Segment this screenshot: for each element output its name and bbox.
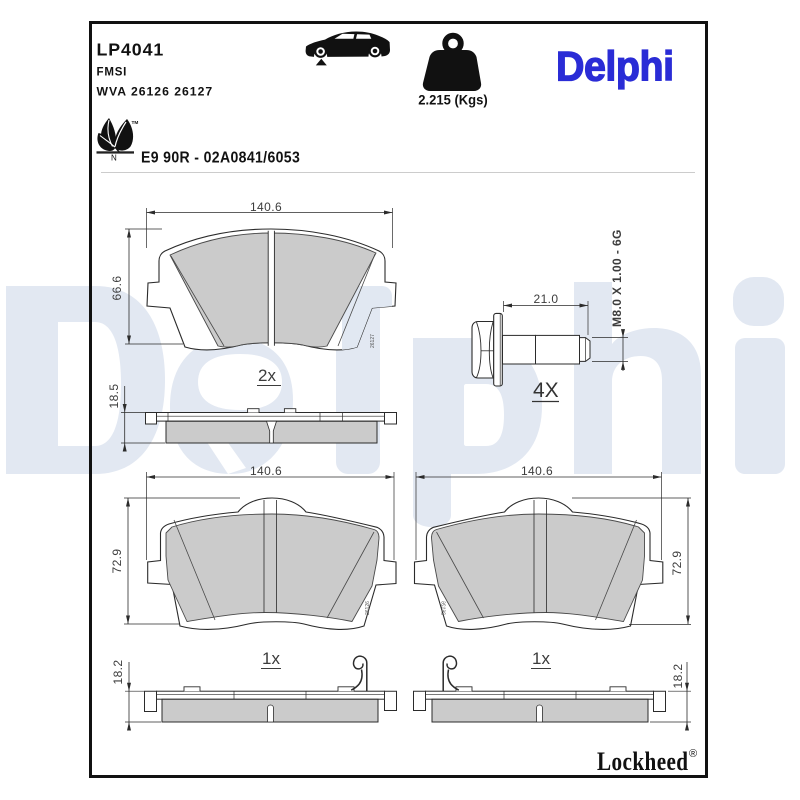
svg-text:Delphi: Delphi (556, 43, 674, 90)
svg-text:18.2: 18.2 (671, 664, 685, 689)
svg-text:2x: 2x (258, 366, 276, 385)
svg-text:M8.0 X 1.00 - 6G: M8.0 X 1.00 - 6G (610, 229, 624, 327)
svg-text:1x: 1x (262, 649, 280, 668)
svg-text:E9 90R - 02A0841/6053: E9 90R - 02A0841/6053 (141, 149, 300, 167)
svg-text:21.0: 21.0 (534, 292, 559, 306)
svg-text:140.6: 140.6 (250, 464, 282, 478)
svg-text:1x: 1x (532, 649, 550, 668)
svg-text:WVA 26126 26127: WVA 26126 26127 (97, 84, 214, 98)
svg-text:140.6: 140.6 (521, 464, 553, 478)
svg-text:®: ® (689, 748, 697, 760)
svg-text:Lockheed: Lockheed (597, 748, 689, 777)
svg-text:TM: TM (132, 120, 139, 126)
svg-text:140.6: 140.6 (250, 200, 282, 214)
svg-text:FMSI: FMSI (97, 66, 128, 78)
svg-text:18.2: 18.2 (111, 660, 125, 685)
svg-text:26126: 26126 (440, 601, 446, 615)
svg-text:LP4041: LP4041 (97, 40, 165, 60)
svg-text:26127: 26127 (370, 334, 376, 348)
svg-text:26126: 26126 (365, 601, 371, 615)
svg-text:72.9: 72.9 (110, 549, 124, 574)
svg-text:72.9: 72.9 (670, 551, 684, 576)
svg-text:2.215 (Kgs): 2.215 (Kgs) (418, 92, 487, 108)
svg-text:66.6: 66.6 (110, 276, 124, 301)
svg-text:4X: 4X (533, 379, 559, 402)
svg-text:18.5: 18.5 (107, 384, 121, 409)
svg-text:N: N (111, 154, 117, 163)
